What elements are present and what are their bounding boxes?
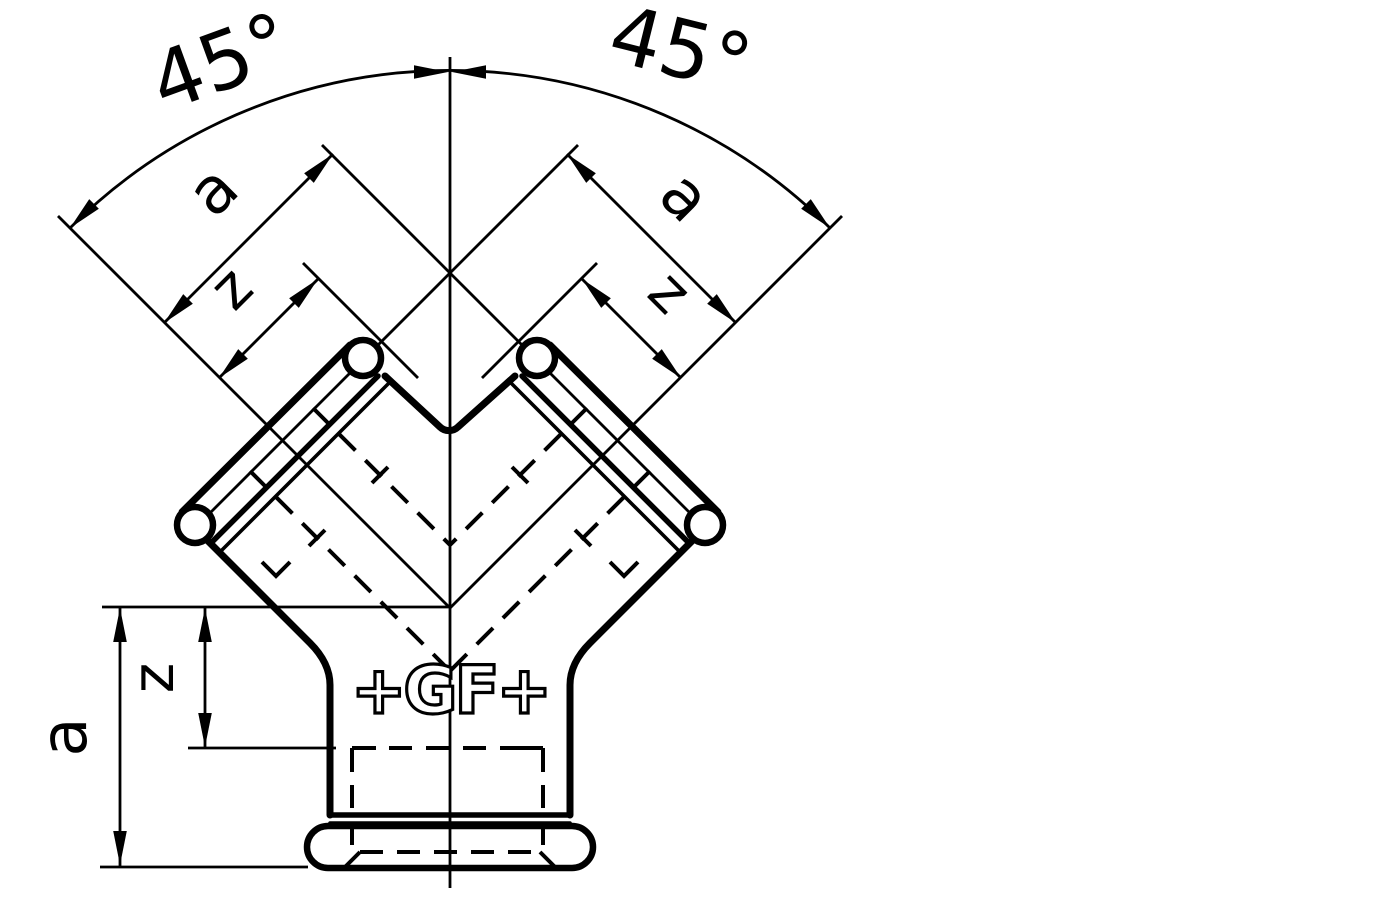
z-label-branch-left: z — [196, 253, 266, 323]
arrowhead — [562, 149, 596, 183]
thread-corner-right — [610, 562, 638, 576]
arrowhead — [198, 713, 212, 747]
bead-left-lower — [177, 507, 213, 543]
a-label-branch-left: a — [173, 151, 253, 231]
branch-axis-left — [58, 216, 450, 608]
arrowhead — [214, 349, 248, 383]
arrowhead — [414, 65, 448, 79]
branch-axis-right — [450, 216, 842, 608]
arrowhead — [577, 274, 611, 308]
arrowhead — [65, 199, 99, 233]
bore-line-right-inner — [450, 408, 587, 545]
dimension-labels: 45° 45° a z a z a z — [28, 0, 761, 757]
arrowhead — [707, 294, 741, 328]
gf-logo: +GF+ — [351, 652, 549, 729]
outer-wall-left — [207, 540, 330, 815]
angle-label-left: 45° — [138, 0, 303, 130]
bead-right-lower — [687, 507, 723, 543]
bead-right-upper — [519, 340, 555, 376]
arrowhead — [159, 294, 193, 328]
angle-label-right: 45° — [601, 0, 761, 112]
outer-wall-right — [570, 540, 693, 815]
z-label-bottom: z — [119, 663, 187, 693]
bead-left-upper — [345, 340, 381, 376]
arrowhead — [652, 349, 686, 383]
a-label-branch-right: a — [645, 157, 725, 237]
thread-corner-left — [262, 562, 290, 576]
bore-line-left-inner — [313, 408, 450, 545]
arrowhead — [113, 831, 127, 865]
a-label-bottom: a — [28, 717, 102, 756]
z-label-branch-right: z — [635, 257, 705, 327]
arrowhead — [801, 199, 835, 233]
arrowhead — [289, 274, 323, 308]
arrowhead — [304, 149, 338, 183]
technical-drawing: 45° 45° a z a z a z +GF+ — [0, 0, 1400, 900]
arrowhead — [452, 65, 486, 79]
drawing-canvas: 45° 45° a z a z a z +GF+ — [0, 0, 1400, 900]
arrowhead — [198, 608, 212, 642]
arrowhead — [113, 608, 127, 642]
